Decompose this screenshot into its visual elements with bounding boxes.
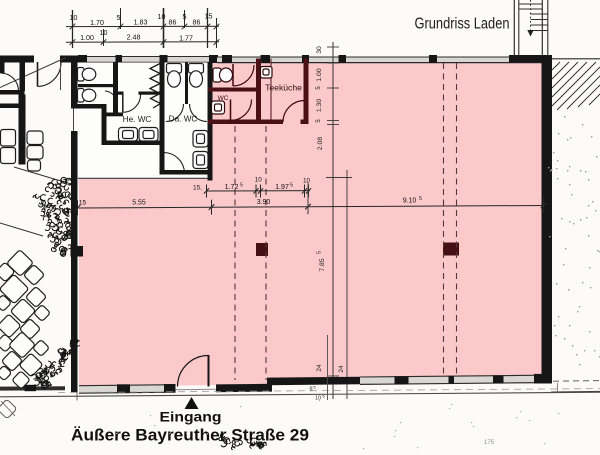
svg-text:5: 5 <box>419 196 422 202</box>
svg-text:7.85: 7.85 <box>319 258 326 271</box>
svg-text:2.08: 2.08 <box>317 137 324 150</box>
svg-text:1.97: 1.97 <box>275 183 289 191</box>
svg-text:1.83: 1.83 <box>134 19 148 27</box>
svg-text:Äußere Bayreuther Straße 29: Äußere Bayreuther Straße 29 <box>71 426 309 445</box>
svg-text:10: 10 <box>70 14 78 22</box>
svg-text:5: 5 <box>117 14 121 22</box>
svg-text:Teeküche: Teeküche <box>265 83 302 93</box>
svg-text:Eingang: Eingang <box>160 410 222 426</box>
svg-text:1.72: 1.72 <box>225 183 239 191</box>
svg-text:10: 10 <box>158 13 166 21</box>
svg-text:5: 5 <box>290 182 293 188</box>
svg-text:Da. WC: Da. WC <box>169 115 198 124</box>
svg-text:1.00: 1.00 <box>80 34 94 42</box>
svg-text:8: 8 <box>309 387 312 393</box>
svg-text:1.00: 1.00 <box>316 68 323 81</box>
svg-text:9.10: 9.10 <box>403 198 417 205</box>
svg-text:1.70: 1.70 <box>90 19 104 27</box>
svg-text:10: 10 <box>255 176 263 183</box>
svg-text:2.48: 2.48 <box>127 34 141 42</box>
svg-text:1.30: 1.30 <box>316 99 323 112</box>
svg-text:15: 15 <box>205 13 213 21</box>
svg-text:5.55: 5.55 <box>132 200 146 207</box>
svg-text:5: 5 <box>317 251 323 254</box>
svg-text:86: 86 <box>169 19 177 27</box>
svg-text:86: 86 <box>193 19 201 27</box>
svg-text:WC: WC <box>218 95 229 102</box>
svg-text:He. WC: He. WC <box>123 115 152 124</box>
svg-text:30: 30 <box>316 46 323 54</box>
svg-text:Grundriss Laden: Grundriss Laden <box>415 16 510 33</box>
svg-text:15,: 15, <box>193 184 202 191</box>
svg-text:3.90: 3.90 <box>257 199 271 206</box>
svg-text:5: 5 <box>240 182 243 188</box>
svg-text:10: 10 <box>303 177 311 184</box>
svg-text:5: 5 <box>183 13 187 21</box>
svg-text:24: 24 <box>338 365 345 373</box>
svg-text:15: 15 <box>79 200 87 207</box>
svg-text:24: 24 <box>316 364 323 372</box>
svg-text:10: 10 <box>100 29 108 37</box>
svg-text:1.77: 1.77 <box>179 35 193 43</box>
svg-text:175: 175 <box>484 440 495 446</box>
